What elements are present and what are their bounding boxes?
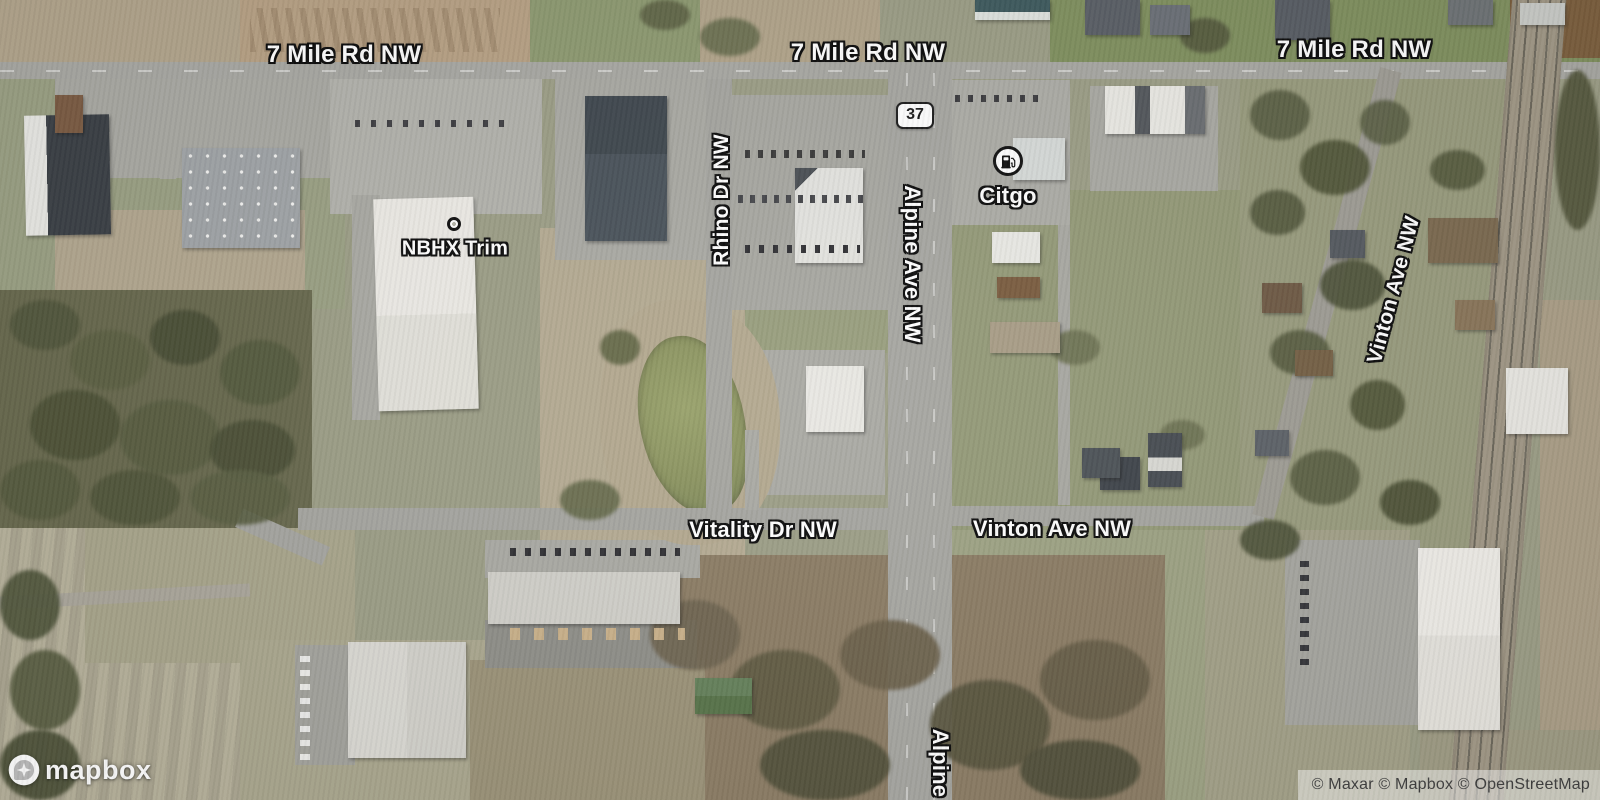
car-row bbox=[355, 120, 505, 127]
tree bbox=[1320, 260, 1385, 310]
attribution-links[interactable]: © Maxar © Mapbox © OpenStreetMap bbox=[1312, 776, 1590, 793]
building bbox=[975, 12, 1050, 20]
mapbox-pin-icon bbox=[8, 754, 40, 786]
terrain-patch bbox=[0, 0, 250, 64]
fuel-station-icon bbox=[1000, 153, 1017, 170]
building bbox=[1085, 0, 1140, 35]
building bbox=[806, 366, 864, 432]
building bbox=[990, 322, 1060, 353]
building bbox=[1418, 548, 1500, 730]
building bbox=[1455, 300, 1495, 330]
terrain-patch bbox=[470, 660, 705, 800]
building-nbhx bbox=[373, 197, 479, 412]
building bbox=[585, 96, 667, 241]
road-label-vitality-dr: Vitality Dr NW bbox=[689, 517, 837, 543]
building bbox=[1506, 368, 1568, 434]
car-row bbox=[745, 150, 865, 158]
citgo-label: Citgo bbox=[979, 183, 1036, 209]
car-row bbox=[955, 95, 1045, 102]
car-row bbox=[1300, 555, 1309, 665]
road-lane-line bbox=[0, 70, 1600, 72]
road-label-7-mile-left: 7 Mile Rd NW bbox=[267, 41, 421, 69]
parking-lot bbox=[1058, 225, 1070, 505]
building bbox=[1330, 230, 1365, 258]
building bbox=[1428, 218, 1498, 263]
road-label-alpine-ave: Alpine Ave NW bbox=[899, 185, 925, 342]
building-green-roof bbox=[695, 678, 752, 714]
tree bbox=[70, 330, 150, 390]
building-warehouse bbox=[348, 642, 466, 758]
building bbox=[1255, 430, 1289, 456]
tree bbox=[120, 400, 220, 475]
car-row bbox=[738, 195, 868, 203]
tree bbox=[1300, 140, 1370, 195]
tree bbox=[1290, 450, 1360, 505]
road-label-7-mile-right: 7 Mile Rd NW bbox=[1277, 36, 1431, 64]
mapbox-logo[interactable]: mapbox bbox=[8, 754, 152, 786]
building bbox=[1520, 3, 1565, 25]
driveway bbox=[160, 79, 176, 179]
building bbox=[1105, 86, 1205, 134]
tree bbox=[1360, 100, 1410, 145]
tree bbox=[1555, 70, 1600, 230]
tree bbox=[1250, 90, 1310, 140]
building bbox=[1150, 5, 1190, 35]
tree bbox=[190, 470, 290, 525]
building bbox=[1082, 448, 1120, 478]
tree bbox=[0, 570, 60, 640]
tree bbox=[0, 460, 80, 520]
tree bbox=[600, 330, 640, 365]
tree bbox=[90, 470, 180, 525]
tree bbox=[220, 340, 300, 405]
tree bbox=[560, 480, 620, 520]
tree bbox=[840, 620, 940, 690]
truck-row bbox=[300, 655, 310, 760]
route-shield-37: 37 bbox=[896, 102, 934, 129]
satellite-imagery bbox=[0, 0, 1600, 800]
tree bbox=[1350, 380, 1405, 430]
attribution-bar: © Maxar © Mapbox © OpenStreetMap bbox=[1298, 770, 1600, 800]
tree bbox=[760, 730, 890, 800]
road-lane-line bbox=[906, 62, 908, 800]
building bbox=[1295, 350, 1333, 376]
citgo-marker bbox=[993, 146, 1023, 176]
building bbox=[55, 95, 83, 133]
tree bbox=[1250, 190, 1305, 235]
tree bbox=[10, 300, 80, 350]
building bbox=[1262, 283, 1302, 313]
tree bbox=[1040, 640, 1150, 720]
tree bbox=[700, 18, 760, 56]
car-row bbox=[510, 548, 680, 556]
road-label-vinton-horizontal: Vinton Ave NW bbox=[973, 516, 1131, 542]
mapbox-wordmark: mapbox bbox=[45, 755, 152, 786]
building bbox=[182, 148, 300, 248]
driveway bbox=[745, 430, 759, 510]
tree bbox=[1380, 480, 1440, 525]
car-row bbox=[745, 245, 860, 253]
building bbox=[1148, 433, 1182, 487]
terrain-patch bbox=[530, 0, 720, 64]
tree bbox=[1020, 740, 1140, 800]
tree bbox=[30, 390, 120, 460]
tree bbox=[640, 0, 690, 30]
road-lane-line bbox=[933, 62, 935, 800]
tree bbox=[1430, 150, 1485, 190]
tree bbox=[10, 650, 80, 730]
building-warehouse bbox=[488, 572, 680, 624]
truck-row bbox=[510, 628, 685, 640]
road-label-alpine-bottom: Alpine bbox=[927, 729, 953, 797]
tree bbox=[1240, 520, 1300, 560]
route-shield-number: 37 bbox=[906, 106, 924, 123]
road-label-rhino-dr: Rhino Dr NW bbox=[710, 134, 734, 266]
building bbox=[997, 277, 1040, 298]
tree bbox=[150, 310, 220, 365]
building bbox=[1448, 0, 1493, 25]
parking-lot bbox=[330, 64, 542, 214]
building bbox=[1275, 0, 1330, 40]
building bbox=[992, 232, 1040, 263]
satellite-map[interactable]: 7 Mile Rd NW 7 Mile Rd NW 7 Mile Rd NW R… bbox=[0, 0, 1600, 800]
nbhx-trim-marker bbox=[447, 217, 461, 231]
nbhx-trim-label: NBHX Trim bbox=[402, 238, 508, 261]
road-label-7-mile-center: 7 Mile Rd NW bbox=[791, 39, 945, 67]
